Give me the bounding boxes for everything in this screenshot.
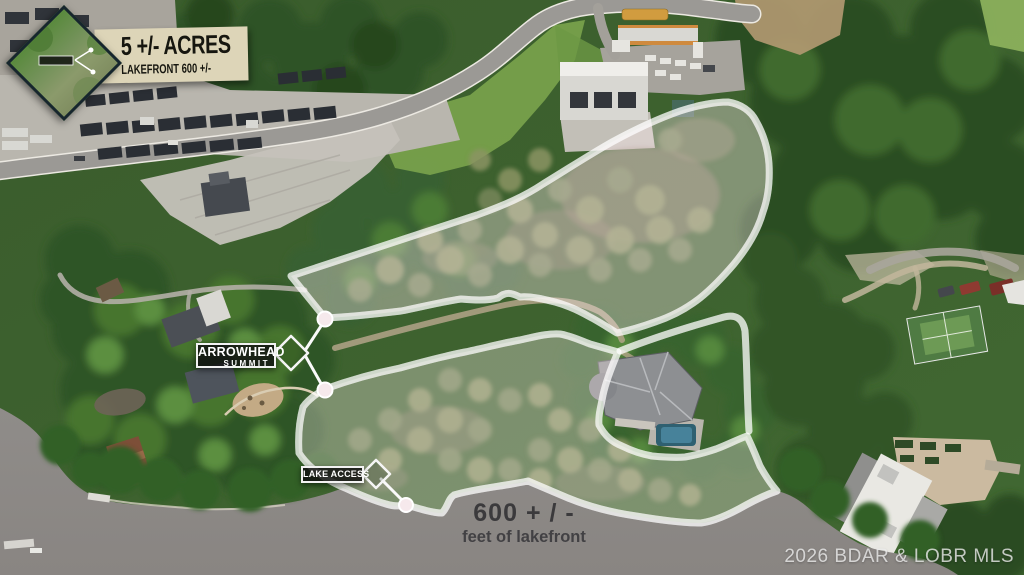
arrowhead-label-line2: SUMMIT	[198, 360, 274, 368]
lakefront-length-value: 600 + / -	[428, 501, 620, 526]
arrowhead-summit-label: ARROWHEAD SUMMIT	[196, 343, 276, 368]
acreage-badge: 5 +/- ACRES LAKEFRONT 600 +/-	[94, 26, 248, 83]
aerial-photo-scene	[0, 0, 1024, 575]
aerial-listing-photo: 5 +/- ACRES LAKEFRONT 600 +/- ARROWHEAD …	[0, 0, 1024, 575]
lake-access-label: LAKE ACCESS	[301, 466, 364, 483]
school-bus	[622, 9, 668, 20]
lakefront-length-annotation: 600 + / - feet of lakefront	[428, 501, 620, 546]
mls-watermark: 2026 BDAR & LOBR MLS	[784, 546, 1014, 568]
lakefront-length-caption: feet of lakefront	[428, 529, 620, 546]
arrowhead-label-line1: ARROWHEAD	[198, 346, 274, 359]
acreage-text: 5 +/- ACRES	[121, 30, 218, 61]
lakefront-subtitle: LAKEFRONT 600 +/-	[121, 60, 213, 77]
